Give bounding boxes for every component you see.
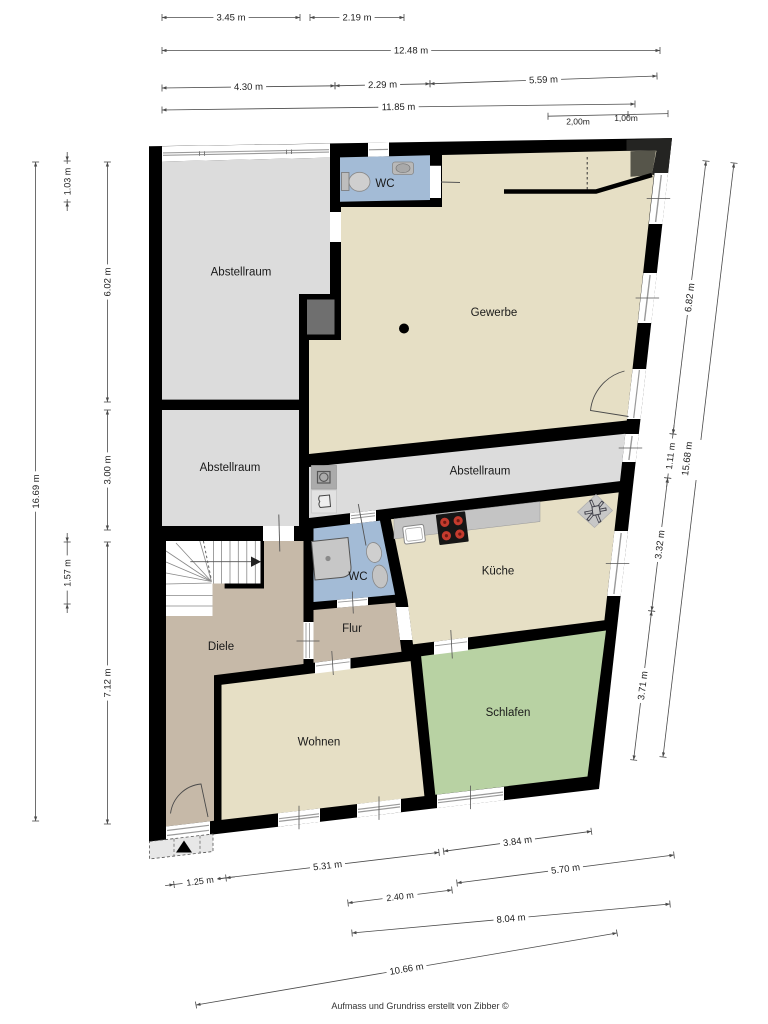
svg-text:2.19 m: 2.19 m	[342, 13, 371, 24]
svg-text:3.84 m: 3.84 m	[502, 834, 532, 849]
svg-text:12.48 m: 12.48 m	[394, 46, 428, 57]
svg-text:1.03 m: 1.03 m	[62, 168, 72, 196]
svg-text:Schlafen: Schlafen	[486, 707, 531, 719]
svg-text:6.82 m: 6.82 m	[683, 282, 697, 312]
svg-text:1.11 m: 1.11 m	[664, 442, 677, 470]
svg-text:Wohnen: Wohnen	[298, 737, 341, 749]
svg-text:1.57 m: 1.57 m	[62, 559, 72, 587]
svg-text:3.32 m: 3.32 m	[653, 529, 667, 559]
svg-text:Flur: Flur	[342, 623, 362, 635]
svg-text:2.40 m: 2.40 m	[386, 890, 415, 903]
svg-text:8.04 m: 8.04 m	[496, 912, 526, 926]
svg-text:3.00 m: 3.00 m	[103, 455, 114, 484]
svg-text:Aufmass und Grundriss erstellt: Aufmass und Grundriss erstellt von Zibbe…	[331, 1001, 509, 1011]
svg-text:Abstellraum: Abstellraum	[450, 466, 511, 478]
svg-text:6.02 m: 6.02 m	[103, 267, 114, 296]
svg-text:Gewerbe: Gewerbe	[471, 307, 518, 319]
svg-text:WC: WC	[348, 571, 367, 583]
svg-text:Diele: Diele	[208, 641, 234, 653]
svg-text:2,00m: 2,00m	[566, 117, 590, 127]
svg-text:WC: WC	[375, 178, 394, 190]
svg-text:1,00m: 1,00m	[614, 113, 638, 123]
svg-text:1.25 m: 1.25 m	[186, 875, 215, 888]
svg-text:10.66 m: 10.66 m	[389, 961, 425, 978]
svg-text:Abstellraum: Abstellraum	[211, 267, 272, 279]
svg-text:Küche: Küche	[482, 566, 515, 578]
svg-text:5.59 m: 5.59 m	[529, 74, 558, 86]
svg-text:5.70 m: 5.70 m	[550, 862, 580, 877]
svg-text:7.12 m: 7.12 m	[103, 668, 114, 697]
svg-text:16.69 m: 16.69 m	[31, 474, 42, 508]
svg-text:11.85 m: 11.85 m	[382, 102, 416, 113]
svg-text:Abstellraum: Abstellraum	[200, 462, 261, 474]
svg-text:3.45 m: 3.45 m	[216, 13, 245, 24]
svg-text:5.31 m: 5.31 m	[313, 859, 343, 873]
svg-text:2.29 m: 2.29 m	[368, 79, 397, 91]
svg-text:4.30 m: 4.30 m	[234, 82, 263, 93]
svg-text:3.71 m: 3.71 m	[636, 670, 650, 700]
